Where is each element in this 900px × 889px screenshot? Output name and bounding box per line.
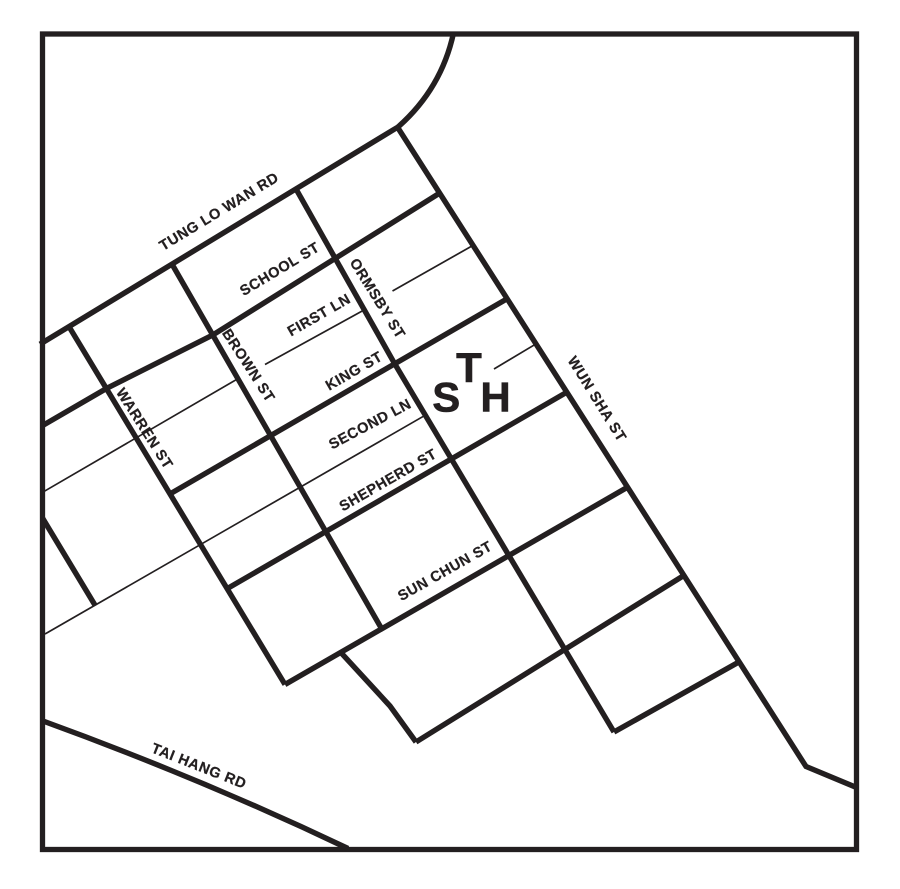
svg-text:WARREN ST: WARREN ST: [112, 386, 175, 473]
svg-text:S: S: [432, 373, 460, 420]
svg-text:H: H: [480, 373, 510, 420]
svg-text:SECOND LN: SECOND LN: [326, 396, 414, 453]
svg-text:TUNG LO WAN RD: TUNG LO WAN RD: [157, 170, 282, 255]
svg-text:FIRST LN: FIRST LN: [285, 291, 354, 340]
